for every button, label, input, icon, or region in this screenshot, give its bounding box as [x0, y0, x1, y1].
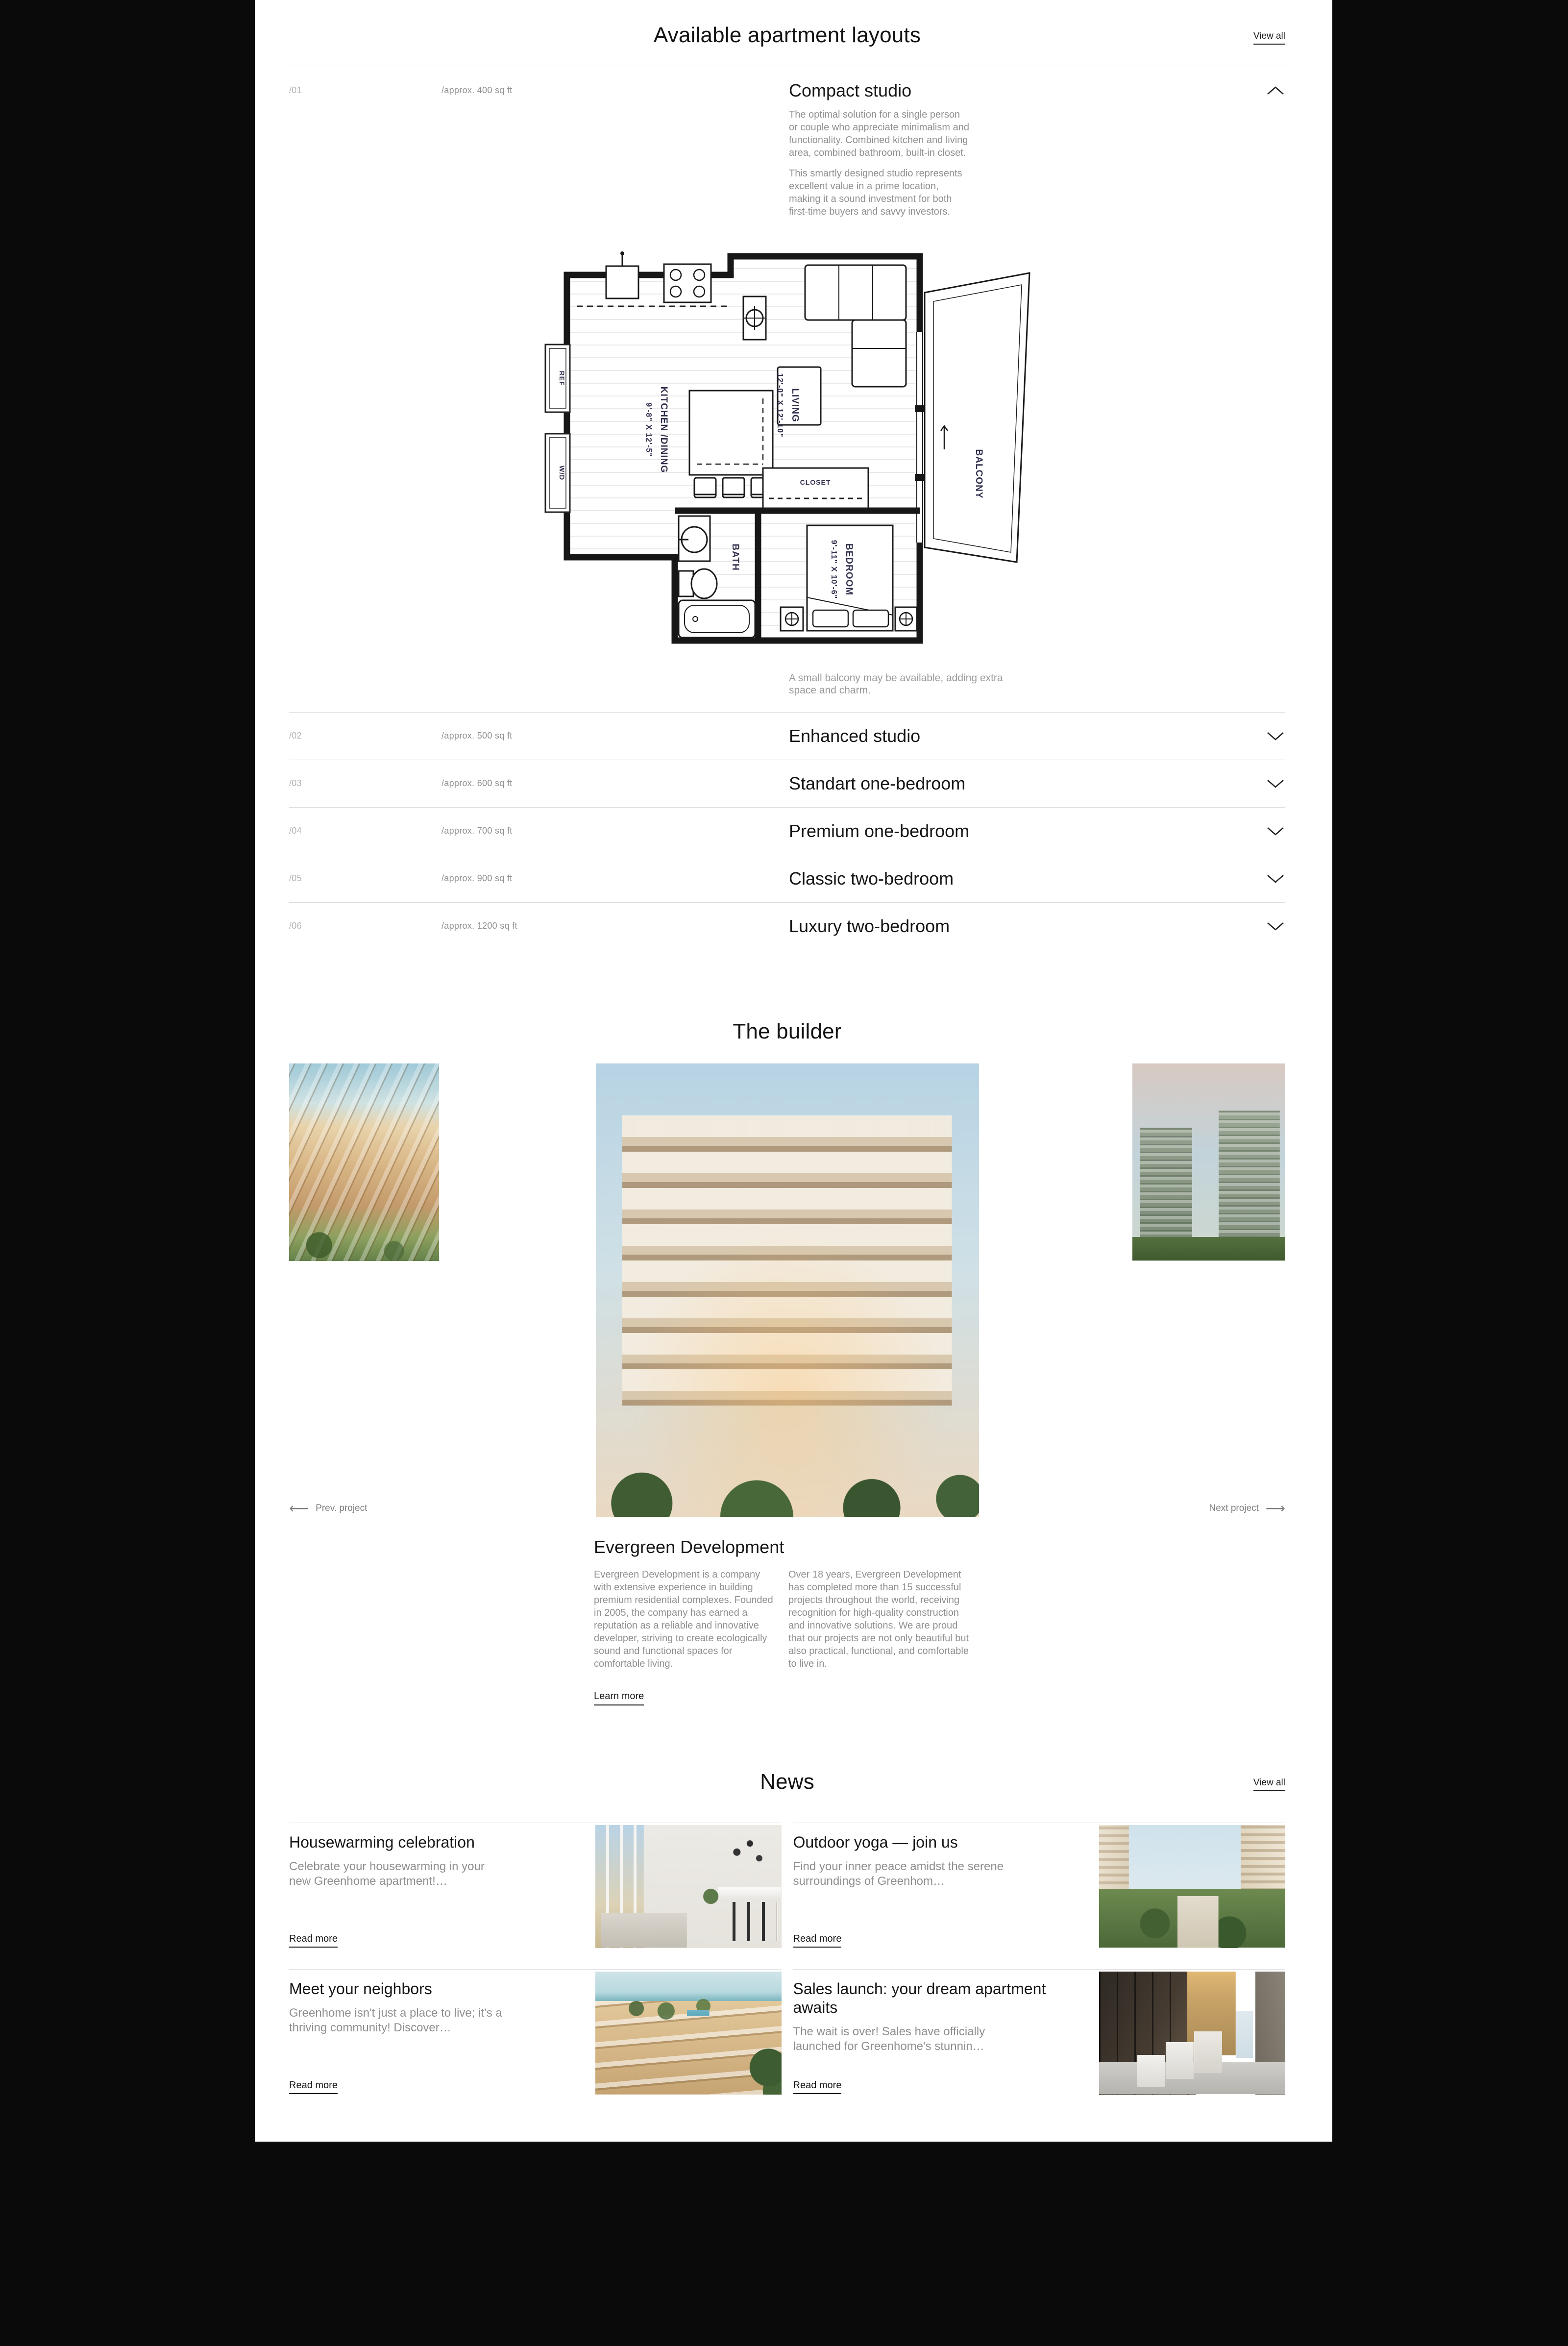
- article-image: [1099, 1825, 1285, 1948]
- plan-label-bedroom: BEDROOM: [844, 543, 854, 595]
- read-more-link[interactable]: Read more: [793, 1933, 842, 1948]
- chevron-down-icon: [1266, 778, 1285, 790]
- layout-size: /approx. 400 sq ft: [441, 85, 789, 96]
- layout-name: Classic two-bedroom: [789, 868, 1261, 889]
- builder-section-header: The builder: [289, 1019, 1285, 1045]
- article-title: Outdoor yoga — join us: [793, 1833, 1088, 1852]
- article-title: Sales launch: your dream apartment await…: [793, 1979, 1088, 2017]
- accordion-body: The optimal solution for a single person…: [289, 108, 1285, 712]
- read-more-link[interactable]: Read more: [793, 2080, 842, 2094]
- plan-label-wd: W/D: [558, 466, 566, 480]
- plan-label-bedroom-dims: 9'-11" X 10'-6": [830, 540, 838, 599]
- prev-project-link[interactable]: ⟵ Prev. project: [289, 1503, 367, 1514]
- news-card-sales-launch: Sales launch: your dream apartment await…: [793, 1969, 1286, 2094]
- layout-paragraph: The optimal solution for a single person…: [789, 108, 971, 159]
- layout-number: /04: [289, 826, 441, 836]
- plan-label-bath: BATH: [730, 543, 740, 570]
- layout-name: Enhanced studio: [789, 725, 1261, 747]
- accordion-header[interactable]: /02 /approx. 500 sq ft Enhanced studio: [289, 713, 1285, 760]
- plan-label-ref: REF: [558, 370, 566, 386]
- floor-plan-caption: A small balcony may be available, adding…: [789, 672, 1004, 696]
- builder-section: The builder ⟵ Prev. project Next project…: [289, 1019, 1285, 1705]
- news-card-outdoor-yoga: Outdoor yoga — join us Find your inner p…: [793, 1823, 1286, 1948]
- article-excerpt: Celebrate your housewarming in your new …: [289, 1859, 505, 1889]
- layout-size: /approx. 500 sq ft: [441, 731, 789, 741]
- prev-project-label: Prev. project: [316, 1503, 367, 1514]
- read-more-link[interactable]: Read more: [289, 2080, 338, 2094]
- layouts-view-all-link[interactable]: View all: [1253, 31, 1285, 45]
- layout-name: Compact studio: [789, 80, 1261, 101]
- plan-label-kitchen: KITCHEN /DINING: [659, 387, 669, 473]
- layout-number: /05: [289, 873, 441, 884]
- plan-label-living: LIVING: [790, 388, 800, 422]
- plan-label-closet: CLOSET: [800, 478, 831, 486]
- layout-number: /01: [289, 85, 441, 96]
- company-description-col1: Evergreen Development is a company with …: [594, 1568, 776, 1670]
- layout-description: The optimal solution for a single person…: [789, 108, 971, 226]
- layouts-title: Available apartment layouts: [289, 23, 1285, 49]
- accordion-header[interactable]: /04 /approx. 700 sq ft Premium one-bedro…: [289, 808, 1285, 855]
- accordion-header[interactable]: /01 /approx. 400 sq ft Compact studio: [289, 66, 1285, 108]
- news-view-all-link[interactable]: View all: [1253, 1778, 1285, 1791]
- layouts-section-header: Available apartment layouts View all: [289, 23, 1285, 49]
- carousel-prev-image[interactable]: [289, 1063, 439, 1261]
- news-grid: Housewarming celebration Celebrate your …: [289, 1823, 1285, 2094]
- layout-number: /02: [289, 731, 441, 741]
- layout-name: Standart one-bedroom: [789, 773, 1261, 794]
- layout-number: /03: [289, 778, 441, 789]
- floor-plan-wrap: REF W/D: [289, 244, 1285, 655]
- accordion-row-standart-one-bedroom: /03 /approx. 600 sq ft Standart one-bedr…: [289, 760, 1285, 807]
- accordion-row-classic-two-bedroom: /05 /approx. 900 sq ft Classic two-bedro…: [289, 855, 1285, 902]
- learn-more-link[interactable]: Learn more: [594, 1691, 644, 1705]
- news-section-header: News View all: [289, 1769, 1285, 1795]
- company-name: Evergreen Development: [594, 1536, 1285, 1557]
- layout-size: /approx. 600 sq ft: [441, 778, 789, 789]
- layout-size: /approx. 1200 sq ft: [441, 921, 789, 931]
- layout-size: /approx. 700 sq ft: [441, 826, 789, 836]
- news-title: News: [289, 1769, 1285, 1795]
- article-title: Housewarming celebration: [289, 1833, 584, 1852]
- article-image: [595, 1972, 782, 2095]
- plan-label-living-dims: 12'-0" X 12'-10": [776, 373, 784, 437]
- article-excerpt: Greenhome isn't just a place to live; it…: [289, 2006, 505, 2035]
- news-card-meet-neighbors: Meet your neighbors Greenhome isn't just…: [289, 1969, 782, 2094]
- builder-title: The builder: [289, 1019, 1285, 1045]
- chevron-down-icon: [1266, 730, 1285, 742]
- read-more-link[interactable]: Read more: [289, 1933, 338, 1948]
- accordion-header[interactable]: /06 /approx. 1200 sq ft Luxury two-bedro…: [289, 903, 1285, 950]
- layout-number: /06: [289, 921, 441, 931]
- plan-label-balcony: BALCONY: [974, 449, 984, 498]
- article-excerpt: Find your inner peace amidst the serene …: [793, 1859, 1009, 1889]
- accordion-row-compact-studio: /01 /approx. 400 sq ft Compact studio Th…: [289, 66, 1285, 712]
- arrow-left-icon: ⟵: [289, 1504, 309, 1513]
- floor-plan: REF W/D: [533, 244, 1042, 655]
- accordion-header[interactable]: /03 /approx. 600 sq ft Standart one-bedr…: [289, 760, 1285, 807]
- next-project-link[interactable]: Next project ⟶: [1209, 1503, 1285, 1514]
- article-excerpt: The wait is over! Sales have officially …: [793, 2025, 1009, 2054]
- accordion-row-enhanced-studio: /02 /approx. 500 sq ft Enhanced studio: [289, 712, 1285, 760]
- news-card-housewarming: Housewarming celebration Celebrate your …: [289, 1823, 782, 1948]
- layouts-accordion: /01 /approx. 400 sq ft Compact studio Th…: [289, 66, 1285, 950]
- chevron-down-icon: [1266, 920, 1285, 932]
- chevron-down-icon: [1266, 825, 1285, 837]
- plan-balcony: [925, 273, 1029, 562]
- layout-name: Luxury two-bedroom: [789, 915, 1261, 937]
- builder-carousel: ⟵ Prev. project Next project ⟶: [289, 1063, 1285, 1517]
- layout-paragraph: This smartly designed studio represents …: [789, 167, 971, 218]
- builder-company-block: Evergreen Development Evergreen Developm…: [594, 1536, 1285, 1705]
- accordion-row-premium-one-bedroom: /04 /approx. 700 sq ft Premium one-bedro…: [289, 807, 1285, 855]
- arrow-right-icon: ⟶: [1266, 1504, 1285, 1513]
- article-image: [1099, 1972, 1285, 2095]
- article-title: Meet your neighbors: [289, 1979, 584, 1998]
- page-panel: Available apartment layouts View all /01…: [255, 0, 1332, 2142]
- company-description-col2: Over 18 years, Evergreen Development has…: [788, 1568, 971, 1670]
- carousel-main-image: [596, 1063, 979, 1517]
- layout-name: Premium one-bedroom: [789, 820, 1261, 842]
- accordion-header[interactable]: /05 /approx. 900 sq ft Classic two-bedro…: [289, 855, 1285, 902]
- layout-size: /approx. 900 sq ft: [441, 873, 789, 884]
- accordion-row-luxury-two-bedroom: /06 /approx. 1200 sq ft Luxury two-bedro…: [289, 902, 1285, 950]
- article-image: [595, 1825, 782, 1948]
- chevron-down-icon: [1266, 873, 1285, 885]
- carousel-next-image[interactable]: [1132, 1063, 1285, 1261]
- news-section: News View all Housewarming celebration C…: [289, 1769, 1285, 2094]
- next-project-label: Next project: [1209, 1503, 1258, 1514]
- chevron-up-icon: [1266, 85, 1285, 97]
- plan-label-kitchen-dims: 9'-8" X 12'-5": [644, 402, 653, 457]
